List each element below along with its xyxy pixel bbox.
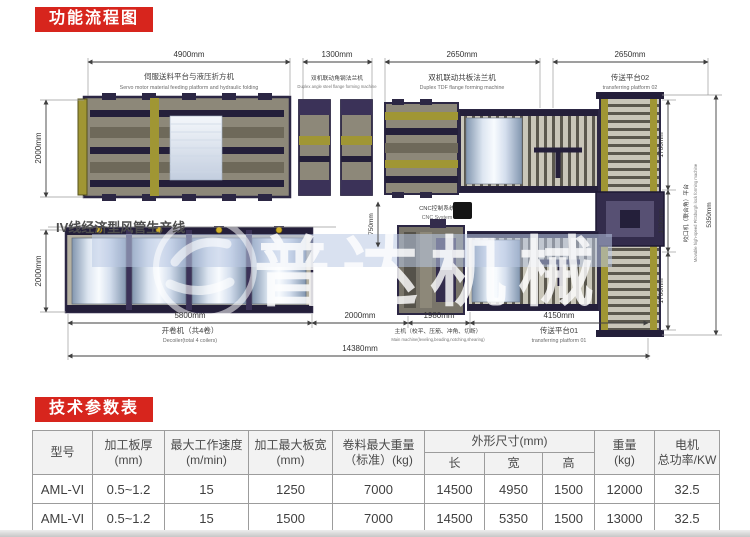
- cell-weight: 12000: [595, 475, 655, 504]
- cell-thickness: 0.5~1.2: [93, 504, 165, 533]
- cell-speed: 15: [165, 504, 249, 533]
- machine-lock-forming-platform: [596, 92, 664, 337]
- label-lock-en: Movable high-speed Pittsburgh lock formi…: [693, 163, 698, 262]
- cell-height: 1500: [543, 504, 595, 533]
- production-line-title: IV线经济型风管生产线: [56, 220, 185, 235]
- label-tdf-en: Duplex TDF flange forming machine: [420, 85, 505, 91]
- dim-2000-gap: 2000mm: [344, 311, 375, 320]
- cnc-label-en: CNC System: [422, 215, 453, 221]
- dim-2650-b: 2650mm: [614, 50, 645, 59]
- dim-750: 750mm: [368, 213, 375, 235]
- cell-width-dim: 4950: [485, 475, 543, 504]
- label-main-en: Main machine(leveling,beading,notching,s…: [391, 337, 485, 342]
- col-header-model: 型号: [33, 431, 93, 475]
- dim-2650-a: 2650mm: [446, 50, 477, 59]
- label-decoiler-cn: 开卷机（共4卷）: [162, 325, 219, 335]
- cnc-label-cn: CNC控制系统: [419, 204, 455, 212]
- section-title-parameters: 技术参数表: [35, 397, 153, 422]
- dim-4900: 4900mm: [173, 50, 204, 59]
- dim-2000-left-bottom: 2000mm: [34, 255, 43, 286]
- cnc-panel-icon: [453, 202, 472, 219]
- col-header-width: 加工最大板宽 (mm): [249, 431, 333, 475]
- page-bottom-edge: [0, 530, 750, 537]
- machine-transfer-platform-02: [460, 110, 598, 192]
- label-tdf-cn: 双机联动共板法兰机: [428, 72, 496, 82]
- dim-1300-top: 1300mm: [321, 50, 352, 59]
- cell-speed: 15: [165, 475, 249, 504]
- col-header-length: 长: [425, 453, 485, 475]
- table-row: AML-VI 0.5~1.2 15 1250 7000 14500 4950 1…: [33, 475, 720, 504]
- cell-coil-weight: 7000: [333, 475, 425, 504]
- flow-diagram-svg: 普达机械 4900mm 1300mm 2650mm 2650mm 伺服送料平台与…: [0, 0, 750, 395]
- cell-length: 14500: [425, 504, 485, 533]
- cell-coil-weight: 7000: [333, 504, 425, 533]
- dimension-lines-bottom: 5800mm 2000mm 1980mm 4150mm 开卷机（共4卷） Dec…: [68, 311, 650, 360]
- cell-height: 1500: [543, 475, 595, 504]
- label-platform1-en: transferring platform 01: [532, 338, 587, 344]
- spec-table: 型号 加工板厚 (mm) 最大工作速度 (m/min) 加工最大板宽 (mm) …: [32, 430, 720, 533]
- label-platform2-cn: 传送平台02: [611, 72, 649, 82]
- cell-power: 32.5: [655, 504, 720, 533]
- flow-diagram: 普达机械 4900mm 1300mm 2650mm 2650mm 伺服送料平台与…: [0, 0, 750, 395]
- cell-thickness: 0.5~1.2: [93, 475, 165, 504]
- label-decoiler-en: Decoiler(total 4 coilers): [163, 338, 217, 344]
- dim-5350: 5350mm: [706, 202, 713, 227]
- label-angle-cn: 双机联动角钢法兰机: [311, 74, 363, 82]
- label-feeding-en: Servo motor material feeding platform an…: [120, 85, 259, 91]
- col-header-power: 电机 总功率/KW: [655, 431, 720, 475]
- cell-width-dim: 5350: [485, 504, 543, 533]
- cell-model: AML-VI: [33, 504, 93, 533]
- dim-1700-right-top: 1700mm: [658, 132, 665, 157]
- cell-length: 14500: [425, 475, 485, 504]
- table-row: AML-VI 0.5~1.2 15 1500 7000 14500 5350 1…: [33, 504, 720, 533]
- dim-1980: 1980mm: [423, 311, 454, 320]
- label-feeding-cn: 伺服送料平台与液压折方机: [144, 71, 234, 81]
- dim-4150: 4150mm: [543, 311, 574, 320]
- dim-1700-right-bottom: 1700mm: [658, 278, 665, 303]
- col-header-weight: 重量 (kg): [595, 431, 655, 475]
- col-header-height: 高: [543, 453, 595, 475]
- cell-power: 32.5: [655, 475, 720, 504]
- label-platform1-cn: 传送平台01: [540, 325, 578, 335]
- machine-angle-flange: [299, 100, 372, 195]
- machine-tdf-flange: [385, 99, 458, 198]
- dim-1300-right: 1300mm: [658, 208, 665, 233]
- dim-5800: 5800mm: [174, 311, 205, 320]
- dim-14380: 14380mm: [342, 344, 378, 353]
- label-angle-en: Duplex angle steel flange forming machin…: [297, 84, 377, 89]
- watermark-text: 普达机械: [254, 231, 606, 316]
- label-main-cn: 主机（校平、压筋、冲角、切断）: [395, 327, 482, 335]
- cell-width: 1500: [249, 504, 333, 533]
- col-header-dimensions: 外形尺寸(mm): [425, 431, 595, 453]
- label-platform2-en: transferring platform 02: [603, 85, 658, 91]
- col-header-thickness: 加工板厚 (mm): [93, 431, 165, 475]
- machine-servo-feeding-platform: [78, 93, 290, 201]
- dim-2000-left-top: 2000mm: [34, 132, 43, 163]
- cell-weight: 13000: [595, 504, 655, 533]
- cell-model: AML-VI: [33, 475, 93, 504]
- col-header-width-sub: 宽: [485, 453, 543, 475]
- col-header-speed: 最大工作速度 (m/min): [165, 431, 249, 475]
- label-lock-cn: 咬口机（联合角）平台: [682, 184, 690, 242]
- col-header-coil-weight: 卷料最大重量 （标准）(kg): [333, 431, 425, 475]
- cell-width: 1250: [249, 475, 333, 504]
- dimension-lines-right: 1700mm 1300mm 1700mm 咬口机（联合角）平台 Movable …: [658, 95, 722, 335]
